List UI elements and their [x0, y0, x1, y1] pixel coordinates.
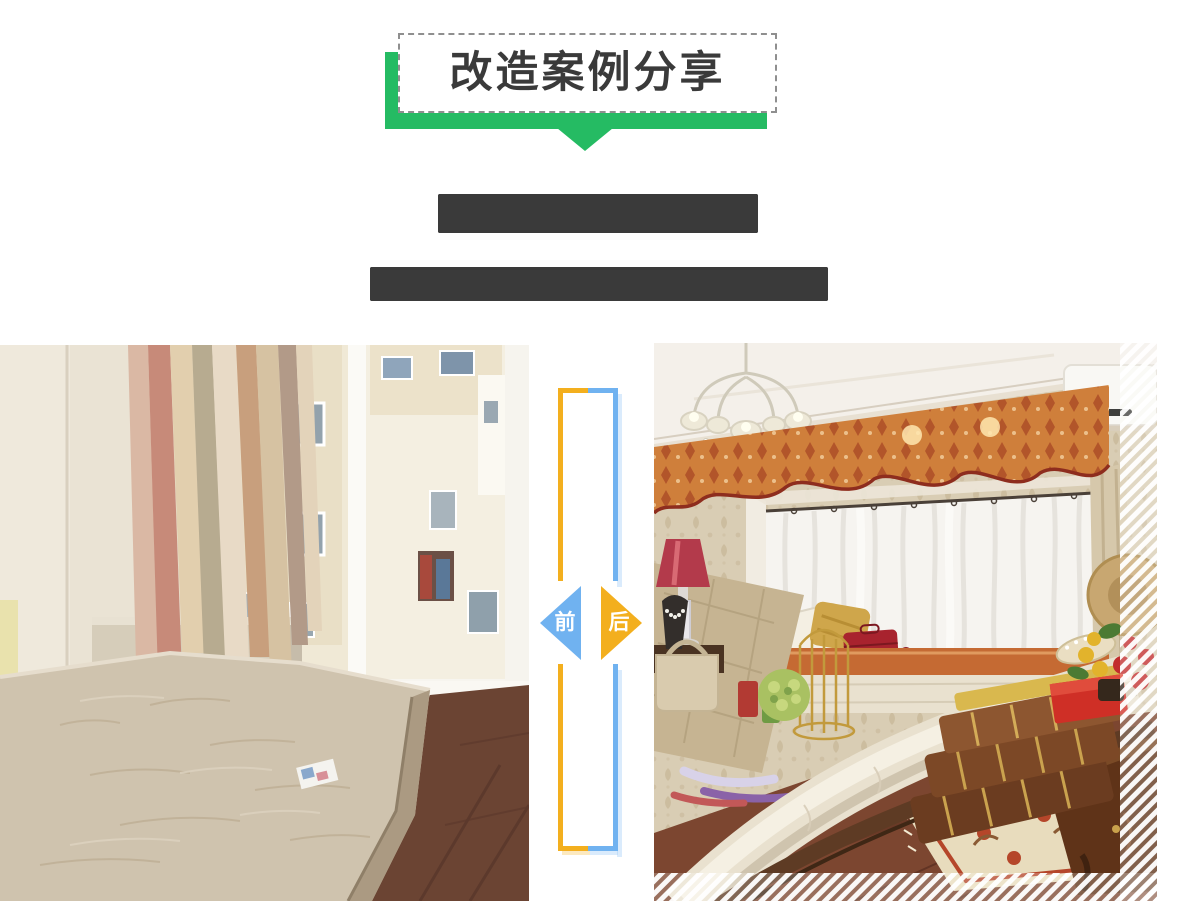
downlight-glow: [980, 417, 1000, 437]
before-photo-illustration: [0, 345, 529, 901]
frame-edge-left-yellow: [558, 388, 563, 581]
before-label: 前: [552, 612, 578, 633]
section-title: 改造案例分享: [450, 52, 726, 95]
after-photo-illustration: [654, 343, 1157, 901]
mattress: [0, 653, 430, 901]
flower-ball: [758, 669, 810, 721]
headline-redacted-line2: ███████████████████████: [370, 267, 828, 301]
frame-edge-right-blue: [613, 664, 618, 851]
divider-frame-top: [558, 388, 618, 581]
after-photo: [654, 343, 1157, 901]
hatch-edge-bottom: [654, 873, 1157, 901]
headline-redacted-line1: ██████████████: [438, 194, 758, 233]
after-label: 后: [606, 612, 632, 633]
frame-edge-left-yellow: [558, 664, 563, 851]
divider-frame-bottom: [558, 664, 618, 851]
before-photo: [0, 345, 529, 901]
downlight-glow: [902, 425, 922, 445]
page: 改造案例分享 ██████████████ ██████████████████…: [0, 0, 1184, 901]
ribbon-pointer-icon: [557, 128, 613, 151]
frame-edge-right-blue: [613, 388, 618, 581]
candle: [738, 681, 758, 717]
section-title-box: 改造案例分享: [398, 33, 777, 113]
hatch-edge-right: [1120, 343, 1157, 901]
